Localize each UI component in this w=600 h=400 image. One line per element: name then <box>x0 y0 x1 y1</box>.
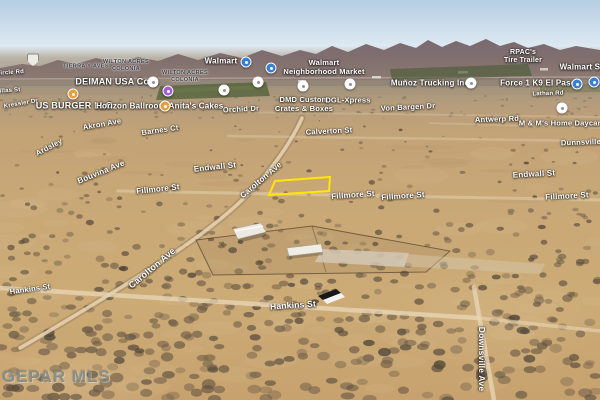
poi-label-line: Anita's Cakes <box>169 101 224 110</box>
walmart-store-icon <box>241 57 252 68</box>
street-label-dunnsville-st: Dunnsville St <box>561 137 600 148</box>
satellite-map-photo: Circle RdVillas StKressler DrAkron AveBa… <box>0 0 600 400</box>
street-label-akron-ave: Akron Ave <box>82 116 122 132</box>
street-label-kressler-dr: Kressler Dr <box>3 98 38 110</box>
map-labels-layer: Circle RdVillas StKressler DrAkron AveBa… <box>0 0 600 400</box>
street-label-barnes-ct: Barnes Ct <box>141 123 179 137</box>
colonia-label-wilton-acres: WILTON ACRESCOLONIA <box>162 70 208 84</box>
street-label-fillmore-st: Fillmore St <box>381 190 425 202</box>
street-label-circle-rd: Circle Rd <box>0 69 24 77</box>
street-label-bouvina-ave: Bouvina Ave <box>76 158 126 185</box>
poi-label-line: DEIMAN USA Corp <box>75 77 158 88</box>
street-label-carolton-ave: Carolton Ave <box>238 160 283 200</box>
business-icon <box>253 77 264 88</box>
colonia-label-line: COLONIA <box>162 77 208 84</box>
business-icon <box>219 85 230 96</box>
walmart-store-icon <box>266 63 277 74</box>
street-label-hankins-st: Hankins St <box>270 298 317 311</box>
business-icon <box>298 81 309 92</box>
poi-label-line: Walmart Sup <box>560 62 600 71</box>
poi-label-line: Force 1 K9 El Paso <box>500 78 576 87</box>
poi-label-line: Horizon Ballroom <box>96 101 166 110</box>
restaurant-icon <box>68 89 79 100</box>
business-icon <box>148 77 159 88</box>
shopping-icon <box>163 86 174 97</box>
poi-label-walmart: Walmart <box>205 56 238 65</box>
poi-label-line: Walmart <box>205 56 238 65</box>
poi-label-line: Tire Trailer <box>504 57 542 65</box>
watermark-gepar-mls: GEPAR MLS <box>2 367 111 387</box>
poi-label-m-m-s-home-daycare: M & M's Home Daycare <box>519 120 600 129</box>
highway-shield-icon <box>27 54 39 67</box>
street-label-endwall-st: Endwall St <box>193 160 236 173</box>
poi-label-deiman-usa-corp: DEIMAN USA Corp <box>75 77 158 88</box>
walmart-store-icon <box>589 77 600 88</box>
street-label-fillmore-st: Fillmore St <box>136 182 180 196</box>
street-label-orchid-dr: Orchid Dr <box>223 104 260 115</box>
street-label-ardsley: Ardsley <box>34 136 64 158</box>
street-label-carolton-ave: Carolton Ave <box>127 246 178 291</box>
business-icon <box>345 79 356 90</box>
colonia-label-wilton-acres: WILTON ACRESCOLONIA <box>103 59 149 73</box>
poi-label-line: DGL-Xpress <box>325 97 370 106</box>
street-label-fillmore-st: Fillmore St <box>545 190 589 201</box>
poi-label-walmart: WalmartNeighborhood Market <box>283 59 364 77</box>
colonia-label-line: COLONIA <box>103 66 149 73</box>
street-label-calverton-st: Calverton St <box>306 125 353 136</box>
poi-label-line: Muñoz Trucking Inc <box>391 78 469 87</box>
colonia-label-tierra-y-aves: TIERRA Y AVES <box>63 63 109 70</box>
poi-label-mu-oz-trucking-inc: Muñoz Trucking Inc <box>391 78 469 87</box>
poi-label-line: Crates & Boxes <box>275 105 333 114</box>
street-label-hankins-st: Hankins St <box>9 282 51 297</box>
poi-label-line: M & M's Home Daycare <box>519 120 600 129</box>
poi-label-horizon-ballroom: Horizon Ballroom <box>96 101 166 110</box>
poi-label-rpac-s: RPAC'sTire Trailer <box>504 49 542 66</box>
street-label-lathan-rd: Lathan Rd <box>532 90 563 97</box>
poi-label-anita-s-cakes: Anita's Cakes <box>169 101 224 110</box>
poi-label-walmart-sup: Walmart Sup <box>560 62 600 71</box>
restaurant-icon <box>160 101 171 112</box>
poi-label-line: RPAC's <box>504 49 542 57</box>
poi-label-dgl-xpress: DGL-Xpress <box>325 97 370 106</box>
street-label-antwerp-rd: Antwerp Rd <box>475 114 519 125</box>
street-label-fillmore-st: Fillmore St <box>331 189 375 201</box>
poi-label-line: Neighborhood Market <box>283 68 364 77</box>
street-label-villas-st: Villas St <box>0 87 21 95</box>
street-label-von-bargen-dr: Von Bargen Dr <box>381 101 436 113</box>
business-icon <box>557 103 568 114</box>
walmart-store-icon <box>572 79 583 90</box>
colonia-label-line: TIERRA Y AVES <box>63 63 109 70</box>
street-label-endwall-st: Endwall St <box>513 168 556 179</box>
business-icon <box>466 78 477 89</box>
street-label-downsville-ave: Downsville Ave <box>477 327 487 392</box>
poi-label-force-1-k9-el-paso: Force 1 K9 El Paso <box>500 78 576 87</box>
